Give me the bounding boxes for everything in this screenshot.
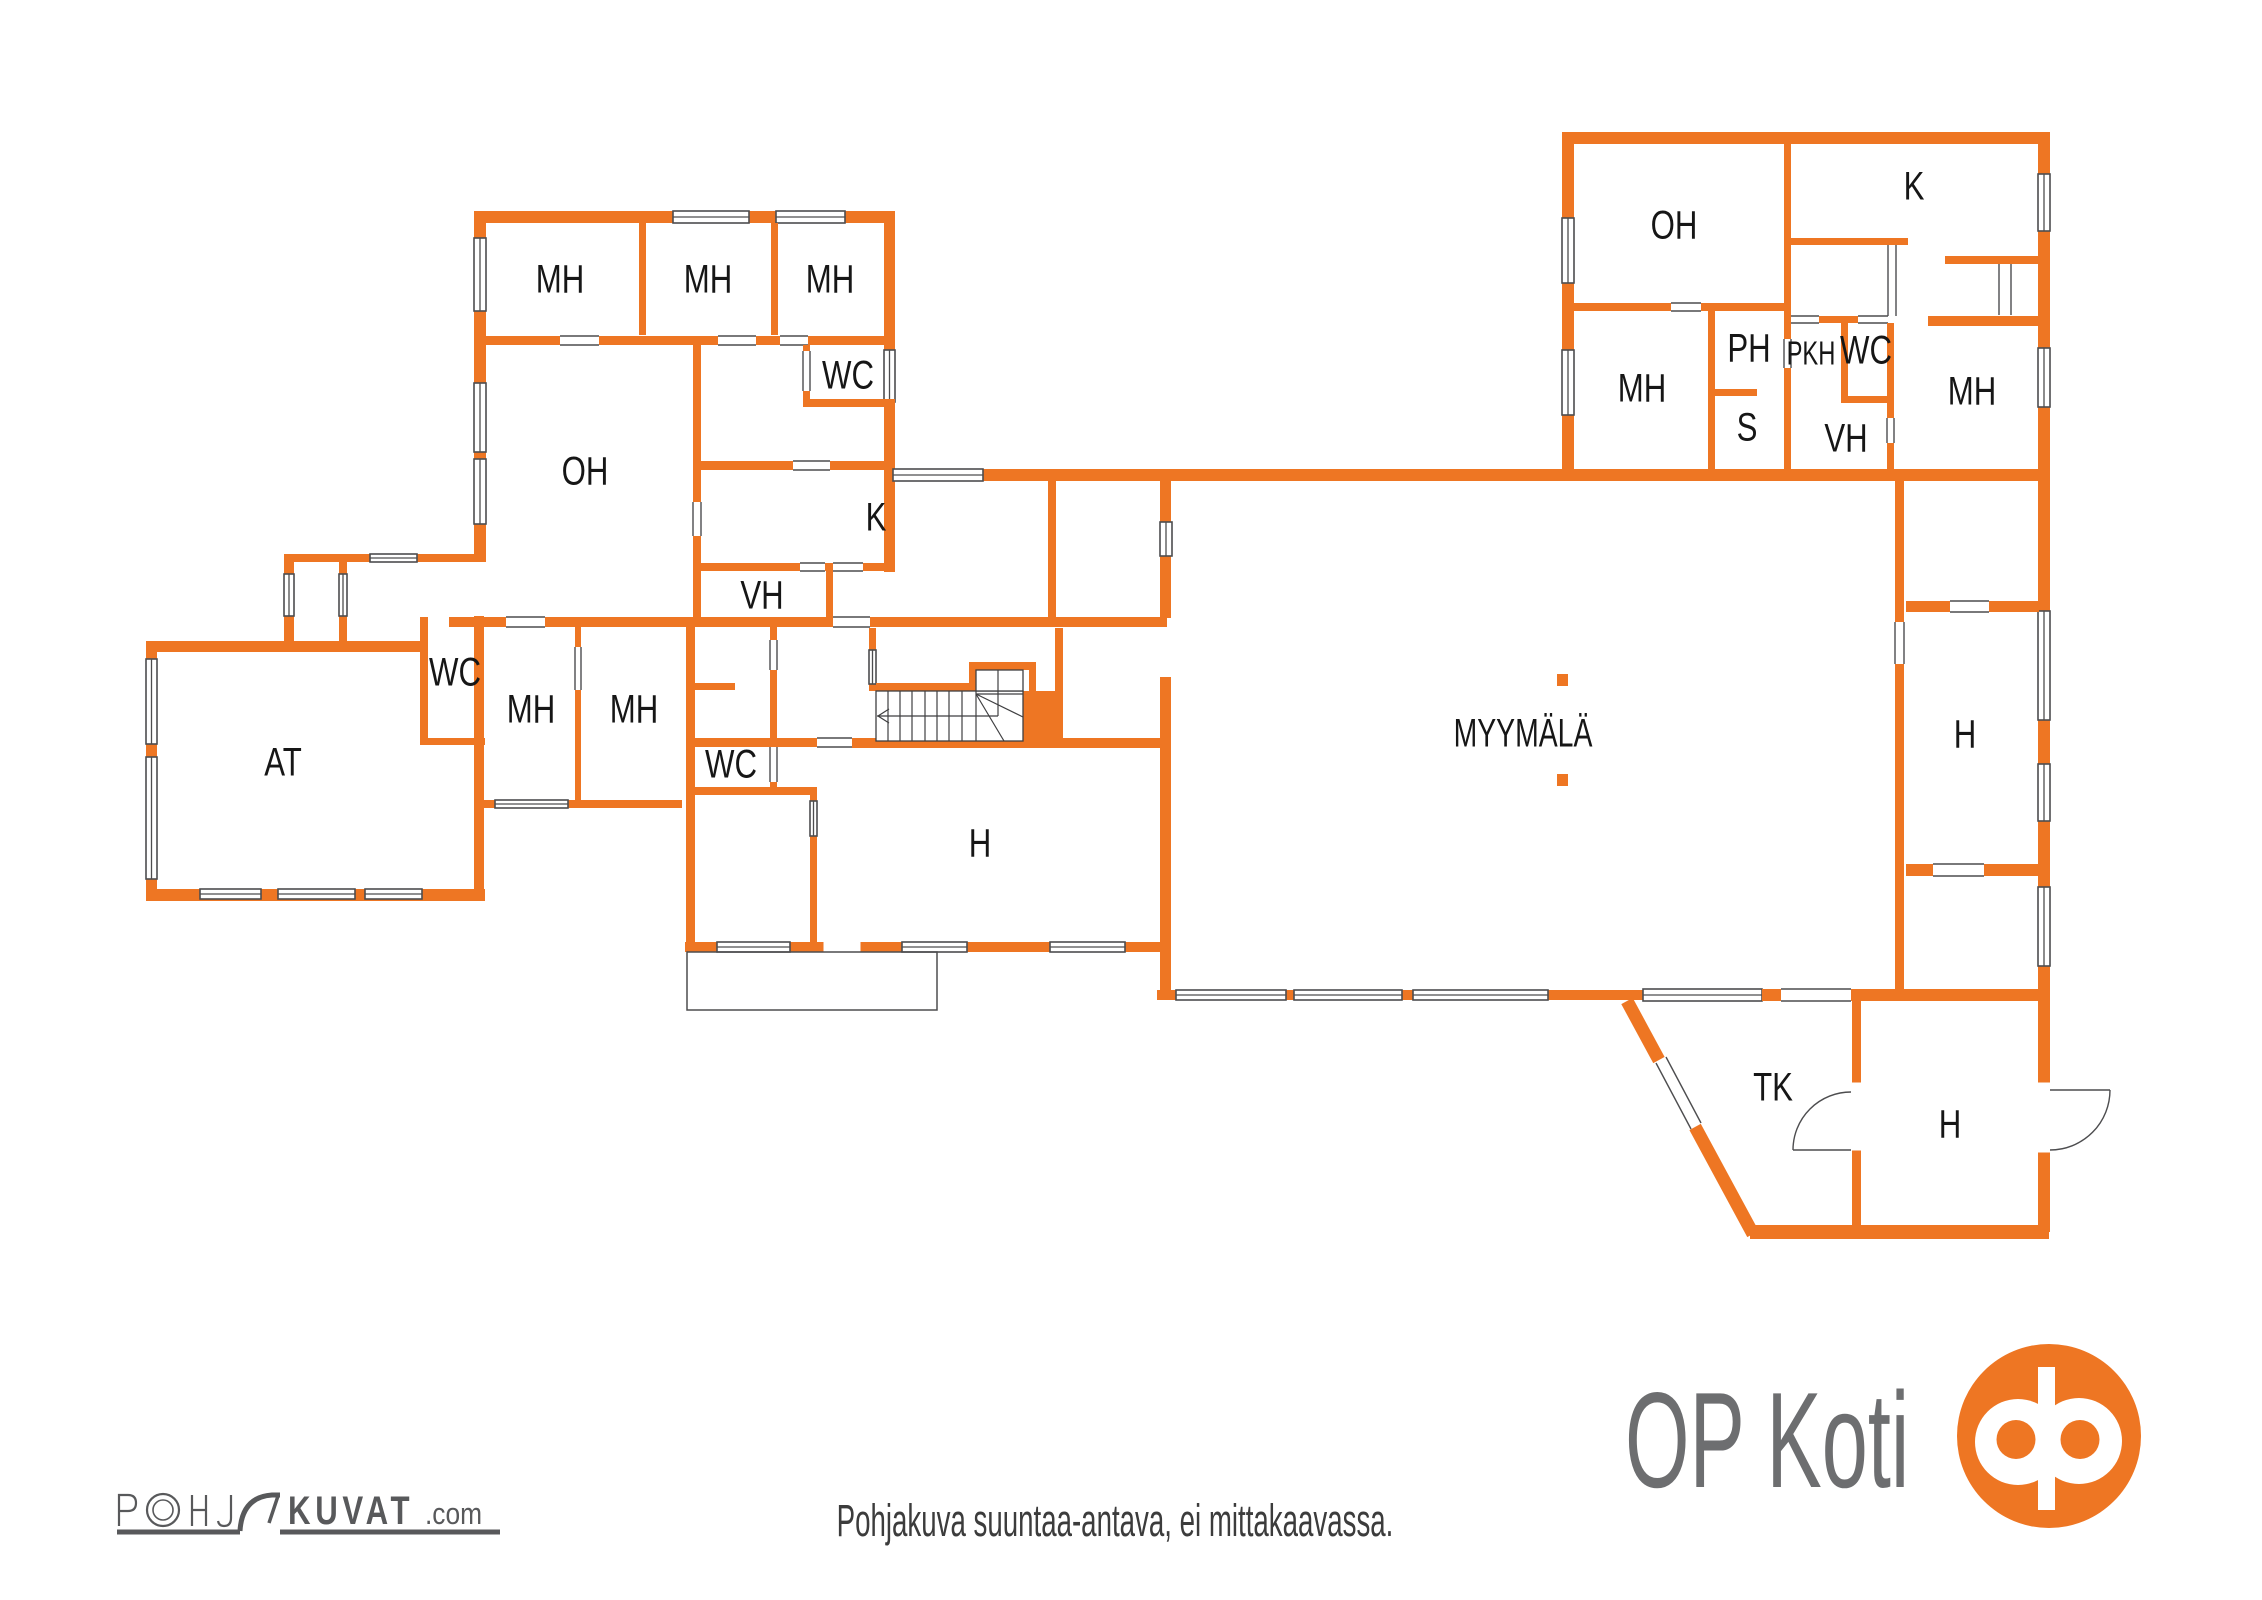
svg-text:H: H: [1939, 1102, 1962, 1147]
svg-text:MH: MH: [536, 257, 585, 302]
svg-text:PH: PH: [1727, 326, 1770, 371]
svg-text:MYYMÄLÄ: MYYMÄLÄ: [1454, 712, 1594, 756]
svg-text:WC: WC: [822, 353, 874, 398]
svg-text:KUVAT: KUVAT: [288, 1488, 414, 1533]
svg-text:AT: AT: [264, 740, 302, 785]
svg-text:H: H: [1954, 712, 1977, 757]
svg-text:VH: VH: [1824, 416, 1867, 461]
svg-text:Pohjakuva suuntaa-antava, ei m: Pohjakuva suuntaa-antava, ei mittakaavas…: [837, 1495, 1394, 1546]
svg-text:OH: OH: [562, 449, 609, 494]
svg-text:MH: MH: [806, 257, 855, 302]
svg-text:WC: WC: [1840, 328, 1892, 373]
svg-text:TK: TK: [1753, 1065, 1793, 1110]
svg-text:WC: WC: [429, 650, 481, 695]
svg-text:MH: MH: [684, 257, 733, 302]
svg-text:MH: MH: [610, 687, 659, 732]
svg-text:OH: OH: [1651, 203, 1698, 248]
svg-text:K: K: [1904, 164, 1925, 209]
svg-text:OP Koti: OP Koti: [1625, 1364, 1909, 1516]
svg-text:.com: .com: [425, 1497, 482, 1531]
svg-text:S: S: [1737, 405, 1758, 450]
svg-text:MH: MH: [1948, 369, 1997, 414]
svg-text:MH: MH: [1618, 366, 1667, 411]
svg-text:MH: MH: [507, 687, 556, 732]
svg-text:K: K: [866, 495, 887, 540]
svg-text:VH: VH: [740, 573, 783, 618]
svg-text:PKH: PKH: [1787, 336, 1836, 373]
svg-text:H: H: [969, 821, 992, 866]
svg-text:WC: WC: [705, 742, 757, 787]
